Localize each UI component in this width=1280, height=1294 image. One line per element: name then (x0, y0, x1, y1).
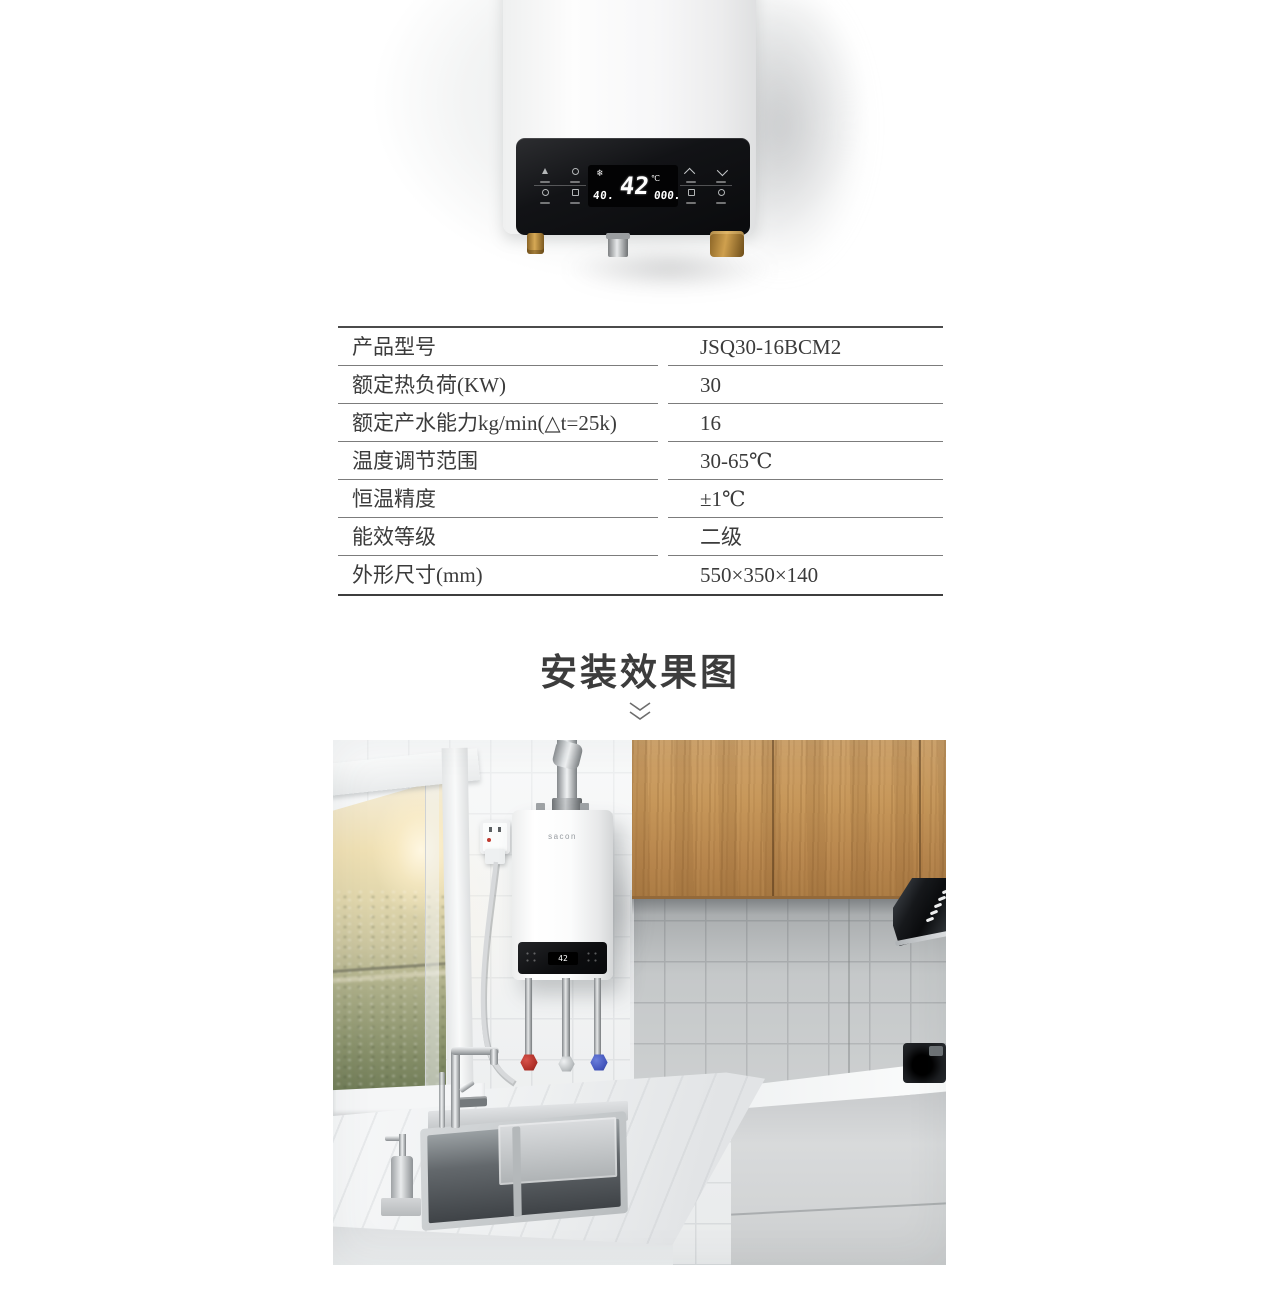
key-label (686, 202, 696, 205)
brass-valve-right (710, 231, 744, 257)
spec-value: 30 (668, 366, 943, 404)
key-label (686, 181, 696, 184)
spec-row: 温度调节范围30-65℃ (338, 442, 943, 480)
key-label (716, 181, 726, 184)
photo-vignette (333, 740, 946, 1265)
spec-value: 30-65℃ (668, 442, 943, 480)
chevron-down-icon (717, 165, 728, 176)
touch-key-icon (710, 189, 732, 204)
panel-divider (534, 185, 586, 186)
touch-key-icon (680, 189, 702, 204)
spec-row: 外形尺寸(mm)550×350×140 (338, 556, 943, 594)
hero-ground-shadow (520, 240, 820, 298)
spec-label: 温度调节范围 (338, 442, 658, 480)
spec-label: 产品型号 (338, 328, 658, 366)
display-temperature: 42 (618, 172, 650, 200)
spec-value: 550×350×140 (668, 556, 943, 594)
section-title: 安装效果图 (0, 642, 1280, 696)
panel-divider (680, 185, 732, 186)
touch-key-icon (534, 168, 556, 183)
spec-value: 16 (668, 404, 943, 442)
lock-icon (688, 189, 695, 196)
display-temp-unit: ℃ (651, 174, 660, 183)
touch-key-icon (680, 168, 702, 183)
touch-key-icon (564, 168, 586, 183)
drop-icon (542, 168, 548, 174)
spec-row: 恒温精度±1℃ (338, 480, 943, 518)
display-left-value: 40. (592, 189, 615, 202)
key-label (570, 181, 580, 184)
heater-control-panel: ❄ 40. 42 ℃ 000. (516, 138, 750, 235)
spec-row: 产品型号JSQ30-16BCM2 (338, 328, 943, 366)
panel-left-keys (534, 168, 586, 204)
mode-icon (572, 189, 579, 196)
chrome-fitting-center (608, 233, 628, 257)
spec-value: ±1℃ (668, 480, 943, 518)
display-right-value: 000. (653, 189, 681, 202)
timer-icon (572, 168, 579, 175)
chevron-up-icon (684, 168, 695, 179)
spec-row: 额定产水能力kg/min(△t=25k)16 (338, 404, 943, 442)
power-icon (718, 189, 725, 196)
installation-photo: sacon 42 (333, 740, 946, 1265)
heater-display: ❄ 40. 42 ℃ 000. (588, 165, 678, 207)
spec-label: 额定热负荷(KW) (338, 366, 658, 404)
key-label (540, 202, 550, 205)
snowflake-icon: ❄ (597, 168, 603, 179)
key-label (540, 181, 550, 184)
spec-label: 能效等级 (338, 518, 658, 556)
key-label (716, 202, 726, 205)
spec-value: JSQ30-16BCM2 (668, 328, 943, 366)
touch-key-icon (534, 189, 556, 204)
spec-label: 额定产水能力kg/min(△t=25k) (338, 404, 658, 442)
spec-value: 二级 (668, 518, 943, 556)
brass-fitting-left (527, 233, 544, 254)
spec-row: 能效等级二级 (338, 518, 943, 556)
boost-icon (542, 189, 549, 196)
spec-row: 额定热负荷(KW)30 (338, 366, 943, 404)
touch-key-icon (564, 189, 586, 204)
touch-key-icon (710, 168, 732, 183)
double-chevron-down-icon (628, 701, 652, 723)
spec-label: 外形尺寸(mm) (338, 556, 658, 594)
spec-table: 产品型号JSQ30-16BCM2额定热负荷(KW)30额定产水能力kg/min(… (338, 326, 943, 596)
page: ❄ 40. 42 ℃ 000. 产品型号JSQ30-16BCM2额定热负荷(KW… (0, 0, 1280, 1294)
key-label (570, 202, 580, 205)
spec-label: 恒温精度 (338, 480, 658, 518)
panel-right-keys (680, 168, 732, 204)
